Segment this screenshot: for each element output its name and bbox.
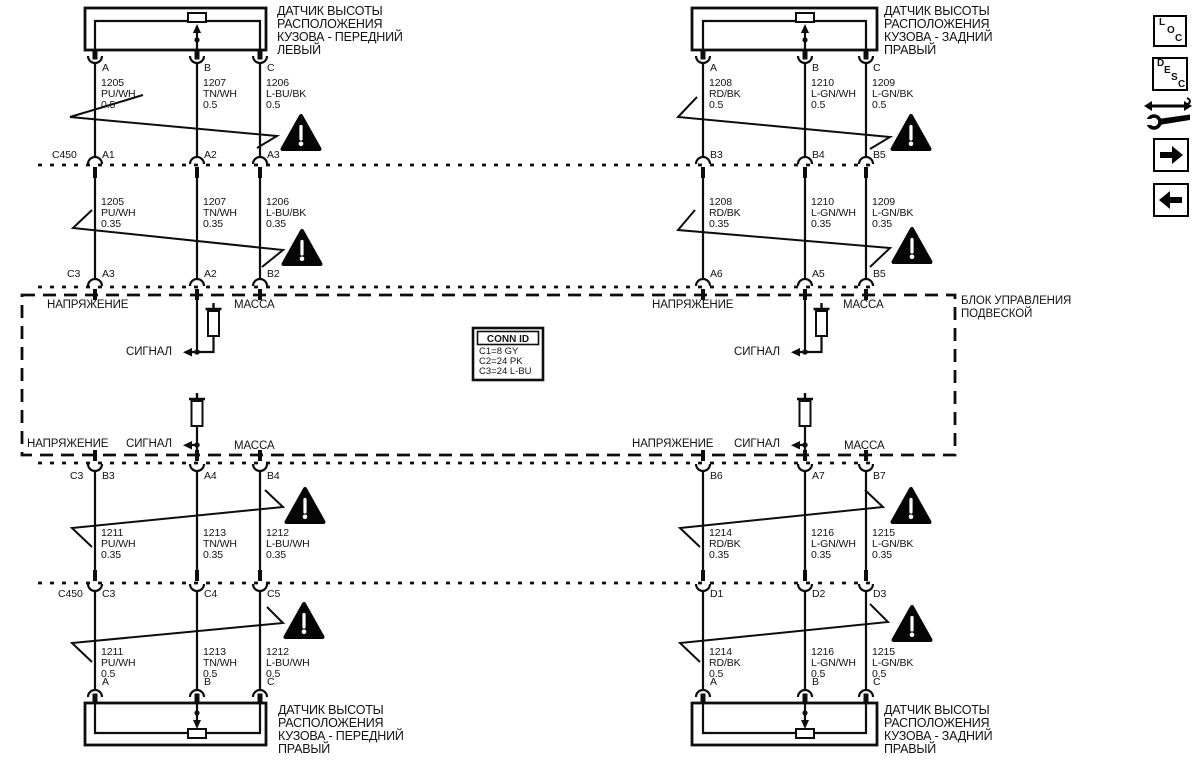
wire-label: 1207TN/WH0.5 [203,78,237,110]
wire-label: 1205PU/WH0.35 [101,197,136,229]
connector-pin: A6 [710,269,723,280]
wire-color: L-GN/BK [872,658,913,669]
warning-triangles [283,116,931,640]
wire-color: RD/BK [709,539,741,550]
pin-letter: A [102,63,109,74]
wire-label: 1208RD/BK0.5 [709,78,741,110]
wire-color: RD/BK [709,208,741,219]
wire-label: 1216L-GN/WH0.35 [811,528,856,560]
wire-label: 1209L-GN/BK0.35 [872,197,913,229]
wire-gauge: 0.35 [811,550,856,561]
wire-gauge: 0.35 [709,550,741,561]
connector-pin: A2 [204,269,217,280]
wire-label: 1214RD/BK0.5 [709,647,741,679]
pin-letter: C [873,63,880,74]
module-voltage-label: НАПРЯЖЕНИЕ [632,438,713,450]
module-name: ПОДВЕСКОЙ [961,308,1032,320]
wire-color: L-BU/BK [266,208,306,219]
wire-label: 1208RD/BK0.35 [709,197,741,229]
module-ground-label: МАССА [234,440,275,452]
wire-gauge: 0.35 [811,219,856,230]
module-signal-label: СИГНАЛ [734,438,780,450]
connector-pin: B4 [812,150,825,161]
module-voltage-label: НАПРЯЖЕНИЕ [27,438,108,450]
wire-gauge: 0.35 [203,550,237,561]
module-ground-label: МАССА [844,440,885,452]
wire-label: 1205PU/WH0.5 [101,78,136,110]
wire-gauge: 0.35 [872,219,913,230]
wire-gauge: 0.5 [811,100,856,111]
connector-name: C450 [52,150,77,161]
wire-label: 1212L-BU/WH0.35 [266,528,310,560]
wire-color: PU/WH [101,658,136,669]
desc-letter: C [1178,80,1185,90]
wire-label: 1210L-GN/WH0.5 [811,78,856,110]
pin-letter: C [873,677,880,688]
loc-letter: C [1175,34,1182,44]
wire-gauge: 0.35 [101,219,136,230]
wire-label: 1211PU/WH0.5 [101,647,136,679]
pin-letter: B [204,677,211,688]
sensor-rear-right-bottom-symbol [692,690,877,745]
arrow-left-icon [1155,185,1187,215]
wire-gauge: 0.35 [266,550,310,561]
wire-color: L-GN/WH [811,658,856,669]
connector-pin: C4 [204,589,217,600]
wire-label: 1213TN/WH0.5 [203,647,237,679]
connector-pin: B7 [873,471,886,482]
wire-color: L-GN/WH [811,89,856,100]
wire-label: 1206L-BU/BK0.35 [266,197,306,229]
wire-label: 1210L-GN/WH0.35 [811,197,856,229]
module-voltage-label: НАПРЯЖЕНИЕ [47,299,128,311]
desc-button[interactable]: D E S C [1152,57,1188,91]
wrench-arrows-icon [1143,96,1195,132]
connector-pin: C3 [102,589,115,600]
pin-letter: A [710,677,717,688]
wire-color: L-GN/BK [872,89,913,100]
connector-pin: A3 [102,269,115,280]
module-signal-label: СИГНАЛ [126,438,172,450]
connector-name: C3 [67,269,80,280]
connector-pin: D1 [710,589,723,600]
connector-pin: A7 [812,471,825,482]
wrench-arrows-button[interactable] [1143,96,1195,132]
sensor-title-line: ПРАВЫЙ [884,44,936,57]
sensor-title-line: ПРАВЫЙ [884,743,936,756]
wire-color: L-BU/WH [266,658,310,669]
wire-color: TN/WH [203,658,237,669]
loc-letter: O [1167,26,1175,36]
wire-color: L-GN/WH [811,539,856,550]
arrow-right-icon [1155,140,1187,170]
pin-letter: B [812,677,819,688]
wire-color: PU/WH [101,208,136,219]
wire-color: L-GN/BK [872,539,913,550]
wire-color: PU/WH [101,89,136,100]
wire-label: 1213TN/WH0.35 [203,528,237,560]
module-signal-label: СИГНАЛ [126,346,172,358]
twisted-pair-markers [70,95,890,662]
connector-pin: D2 [812,589,825,600]
pin-letter: A [102,677,109,688]
wire-label: 1215L-GN/BK0.5 [872,647,913,679]
loc-letter: L [1159,18,1165,28]
module-ground-label: МАССА [843,299,884,311]
connector-pin: B2 [267,269,280,280]
wire-gauge: 0.35 [101,550,136,561]
connector-pin: A1 [102,150,115,161]
wire-gauge: 0.5 [872,100,913,111]
wire-gauge: 0.5 [101,100,136,111]
connector-pin: B6 [710,471,723,482]
connector-pin: C5 [267,589,280,600]
wire-color: TN/WH [203,539,237,550]
wire-label: 1214RD/BK0.35 [709,528,741,560]
connector-pin: A4 [204,471,217,482]
module-voltage-label: НАПРЯЖЕНИЕ [652,299,733,311]
connector-name: C450 [58,589,83,600]
wire-color: RD/BK [709,89,741,100]
sensor-front-right-symbol [85,690,267,745]
module-name: БЛОК УПРАВЛЕНИЯ [961,295,1071,307]
connector-pin: B5 [873,150,886,161]
conn-id-row: C3=24 L-BU [479,367,532,378]
wire-label: 1216L-GN/WH0.5 [811,647,856,679]
desc-letter: S [1171,73,1178,83]
wire-color: TN/WH [203,208,237,219]
wire-color: L-GN/BK [872,208,913,219]
connector-pin: A2 [204,150,217,161]
wire-color: L-GN/WH [811,208,856,219]
wire-label: 1212L-BU/WH0.5 [266,647,310,679]
wire-gauge: 0.5 [203,100,237,111]
wire-gauge: 0.35 [203,219,237,230]
sensor-rear-right-top-symbol [692,8,877,63]
connector-pin: B4 [267,471,280,482]
sensor-title-line: ПРАВЫЙ [278,743,330,756]
wire-color: RD/BK [709,658,741,669]
wire-gauge: 0.5 [709,100,741,111]
connector-pin: B3 [102,471,115,482]
wire-label: 1215L-GN/BK0.35 [872,528,913,560]
wire-label: 1206L-BU/BK0.5 [266,78,306,110]
sensor-title-line: ЛЕВЫЙ [277,44,321,57]
pin-letter: A [710,63,717,74]
pin-letter: B [204,63,211,74]
pin-letter: C [267,677,274,688]
module-signal-label: СИГНАЛ [734,346,780,358]
wiring-diagram-page: ДАТЧИК ВЫСОТЫ РАСПОЛОЖЕНИЯ КУЗОВА - ПЕРЕ… [0,0,1200,765]
wire-color: L-BU/WH [266,539,310,550]
wire-gauge: 0.35 [872,550,913,561]
connector-pin: A3 [267,150,280,161]
loc-button[interactable]: L O C [1153,15,1187,47]
wire-gauge: 0.5 [266,100,306,111]
wire-label: 1211PU/WH0.35 [101,528,136,560]
connector-pin: B3 [710,150,723,161]
connector-name: C3 [70,471,83,482]
pin-letter: C [267,63,274,74]
previous-page-button[interactable] [1153,183,1189,217]
wire-label: 1209L-GN/BK0.5 [872,78,913,110]
conn-id-title: CONN ID [473,334,543,345]
diagram-geometry [0,0,1200,765]
desc-letter: E [1164,66,1171,76]
next-page-button[interactable] [1153,138,1189,172]
wire-color: L-BU/BK [266,89,306,100]
connector-pin: A5 [812,269,825,280]
module-ground-label: МАССА [234,299,275,311]
connector-pin: D3 [873,589,886,600]
wire-label: 1207TN/WH0.35 [203,197,237,229]
wire-color: TN/WH [203,89,237,100]
wire-gauge: 0.35 [709,219,741,230]
sensor-front-left-symbol [85,8,267,63]
connector-pin: B5 [873,269,886,280]
wire-gauge: 0.35 [266,219,306,230]
pin-letter: B [812,63,819,74]
wire-color: PU/WH [101,539,136,550]
